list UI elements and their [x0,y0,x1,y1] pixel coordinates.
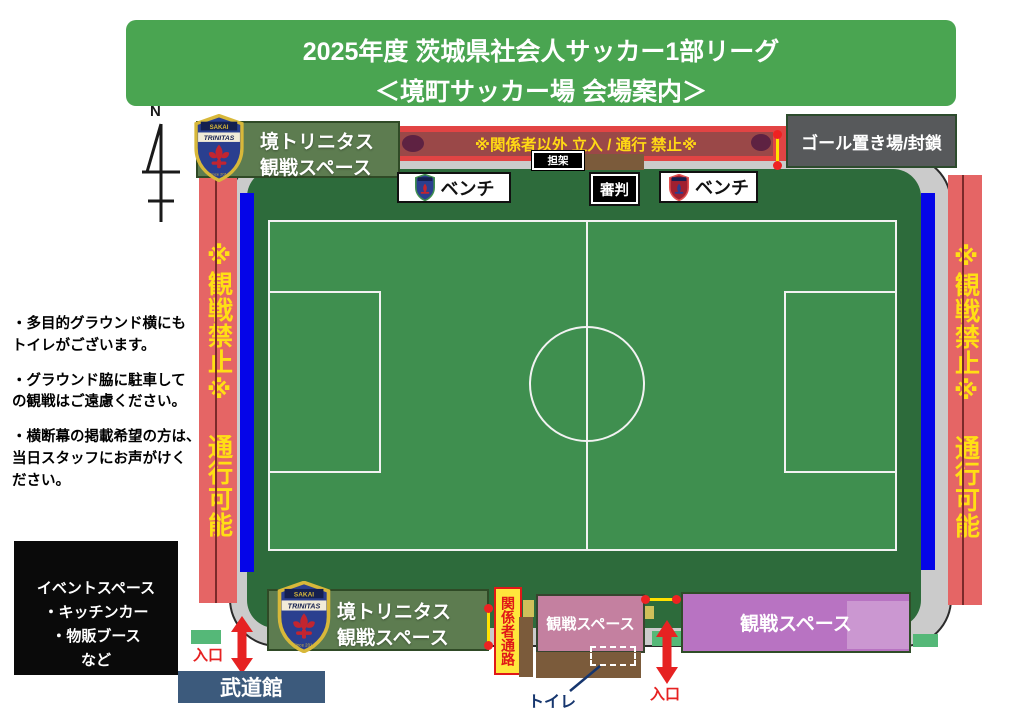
stretcher-label: 担架 [548,153,569,168]
event-space-line4: など [14,649,178,673]
goal-storage-box: ゴール置き場/封鎖 [786,114,957,168]
venue-notes: ・多目的グラウンド横にも トイレがございます。 ・グラウンド脇に駐車して の観戦… [12,314,207,505]
event-space-line2: ・キッチンカー [14,601,178,625]
club-crest-top-sakai: SAKAI [210,125,229,131]
south-entrance-label: 入口 [650,683,680,704]
left-no-spectating-text: ※観戦禁止※ 通行可能 [206,241,231,538]
stretcher-box: 担架 [532,151,584,170]
bottom-stand-pole-top-dot [484,604,493,613]
staff-passage: 関係者通路 [494,587,522,675]
budokan-label: 武道館 [220,672,283,702]
southeast-gate-pad [913,634,938,647]
compass-arrow-icon [134,116,190,228]
club-crest-top-name: TRINITAS [204,135,235,142]
venue-map-canvas: 2025年度 茨城県社会人サッカー1部リーグ ＜境町サッカー場 会場案内＞ N … [0,0,1024,710]
note-3-line1: ・横断幕の掲載希望の方は、 [12,427,207,449]
bench-away-crest-icon [668,174,690,201]
pink-stand-large: 観戦スペース [681,592,911,653]
bottom-stand-pole [487,609,490,645]
club-crest-bottom-since: Since 2014 [293,643,315,648]
storage-strip [584,154,644,170]
bench-away: ベンチ [659,171,758,203]
pink-stand-small-label: 観戦スペース [546,613,634,634]
note-2-line2: の観戦はご遠慮ください。 [12,392,207,414]
note-2-line1: ・グラウンド脇に駐車して [12,371,207,393]
event-space-box: イベントスペース ・キッチンカー ・物販ブース など [14,541,178,675]
banner-pole-right-bottom-dot [773,161,782,170]
pink-stand-large-label: 観戦スペース [740,609,852,636]
note-1-line2: トイレがございます。 [12,336,207,358]
table-right [644,606,654,619]
pink-stand-small: 観戦スペース [536,594,645,653]
top-home-stand-line1: 境トリニタス [260,130,398,156]
banner-pole-right-top-dot [773,130,782,139]
west-entrance-arrow-icon [226,616,258,674]
top-home-stand-line2: 観戦スペース [260,156,398,182]
west-gate-pad [191,630,221,644]
bench-away-label: ベンチ [695,174,749,200]
passage-side-structure [519,617,533,677]
note-3-line2: 当日スタッフにお声がけく [12,449,207,471]
event-space-line3: ・物販ブース [14,625,178,649]
right-no-spectating-text: ※観戦禁止※ 通行可能 [953,242,978,539]
staff-passage-label: 関係者通路 [501,596,515,666]
right-no-spectating-strip: ※観戦禁止※ 通行可能 [948,175,982,605]
left-blue-sideline [240,193,254,572]
pitch-playing-area [269,221,896,550]
note-3-line3: ださい。 [12,471,207,493]
club-crest-top: SAKAI TRINITAS Since 2014 [192,114,246,182]
right-blue-sideline [921,193,935,570]
note-3: ・横断幕の掲載希望の方は、 当日スタッフにお声がけく ださい。 [12,427,207,492]
west-entrance-label: 入口 [193,644,223,665]
toilet-label: トイレ [528,688,576,710]
referee-box: 審判 [591,174,638,204]
bottom-home-stand-line1: 境トリニタス [337,600,487,626]
page-title: 2025年度 茨城県社会人サッカー1部リーグ ＜境町サッカー場 会場案内＞ [126,20,956,106]
bench-home-crest-icon [414,174,436,201]
bench-home: ベンチ [397,172,511,203]
note-1-line1: ・多目的グラウンド横にも [12,314,207,336]
club-crest-bottom-name: TRINITAS [288,601,321,610]
goal-storage-label: ゴール置き場/封鎖 [801,129,942,154]
pink-stand-large-inner [847,601,909,649]
club-crest-top-since: Since 2014 [209,172,230,177]
budokan-box: 武道館 [178,671,325,703]
restricted-banner-text: ※関係者以外 立入 / 通行 禁止※ [475,133,697,155]
left-fence-line [215,175,217,603]
south-entrance-arrow-icon [651,620,683,684]
restricted-banner: ※関係者以外 立入 / 通行 禁止※ [399,132,773,156]
bottom-home-stand-line2: 観戦スペース [337,626,487,652]
stand-connector-left-dot [641,595,650,604]
right-fence-line [962,175,964,605]
club-crest-bottom-sakai: SAKAI [294,592,314,599]
note-1: ・多目的グラウンド横にも トイレがございます。 [12,314,207,358]
note-2: ・グラウンド脇に駐車して の観戦はご遠慮ください。 [12,371,207,415]
referee-label: 審判 [600,179,629,200]
club-crest-bottom: SAKAI TRINITAS Since 2014 [275,581,333,653]
bench-home-label: ベンチ [441,175,495,201]
event-space-line1: イベントスペース [14,577,178,601]
table-left [523,600,534,617]
banner-post-left-dot [402,135,424,152]
stand-connector-right-dot [672,595,681,604]
page-title-line2: ＜境町サッカー場 会場案内＞ [126,72,956,112]
page-title-line1: 2025年度 茨城県社会人サッカー1部リーグ [126,32,956,72]
banner-post-right-dot [751,134,771,151]
bottom-stand-pole-bottom-dot [484,641,493,650]
